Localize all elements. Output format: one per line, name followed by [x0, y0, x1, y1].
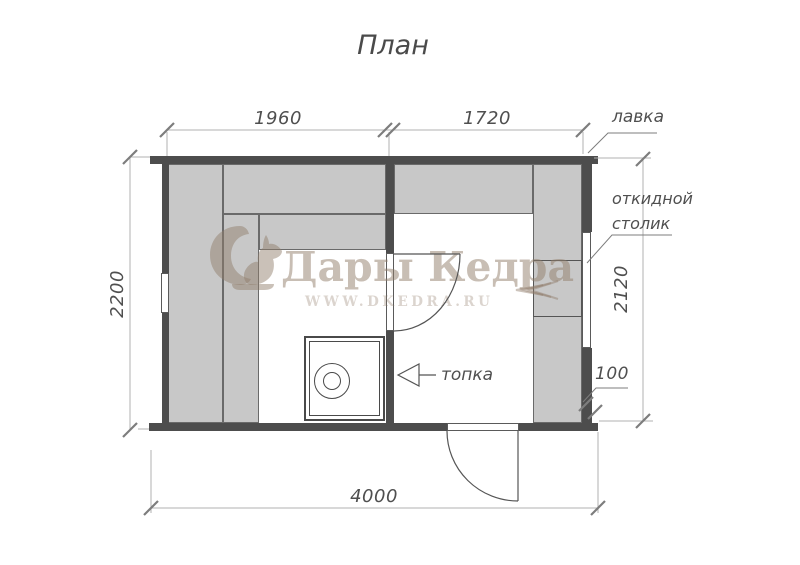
dim-total-width: 4000 [344, 486, 404, 507]
dimension-lines [130, 130, 653, 513]
dim-top-right: 1720 [457, 108, 517, 129]
label-folding-table-1: откидной [612, 189, 693, 208]
dim-top-left: 1960 [248, 108, 308, 129]
label-bench: лавка [612, 107, 664, 127]
dim-wall-thickness: 100 [594, 364, 630, 384]
label-folding-table-2: столик [612, 214, 670, 233]
firebox-arrow-icon [398, 364, 436, 386]
entrance-door-swing [447, 431, 518, 501]
dimension-ticks [123, 123, 650, 515]
dim-left-height: 2200 [107, 264, 127, 324]
dim-right-height: 2120 [611, 259, 631, 319]
partition-door-swing [394, 254, 460, 331]
label-firebox: топка [441, 365, 493, 385]
floor-plan: План Дары Кедра WWW.DKEDRA.RU [0, 0, 800, 565]
